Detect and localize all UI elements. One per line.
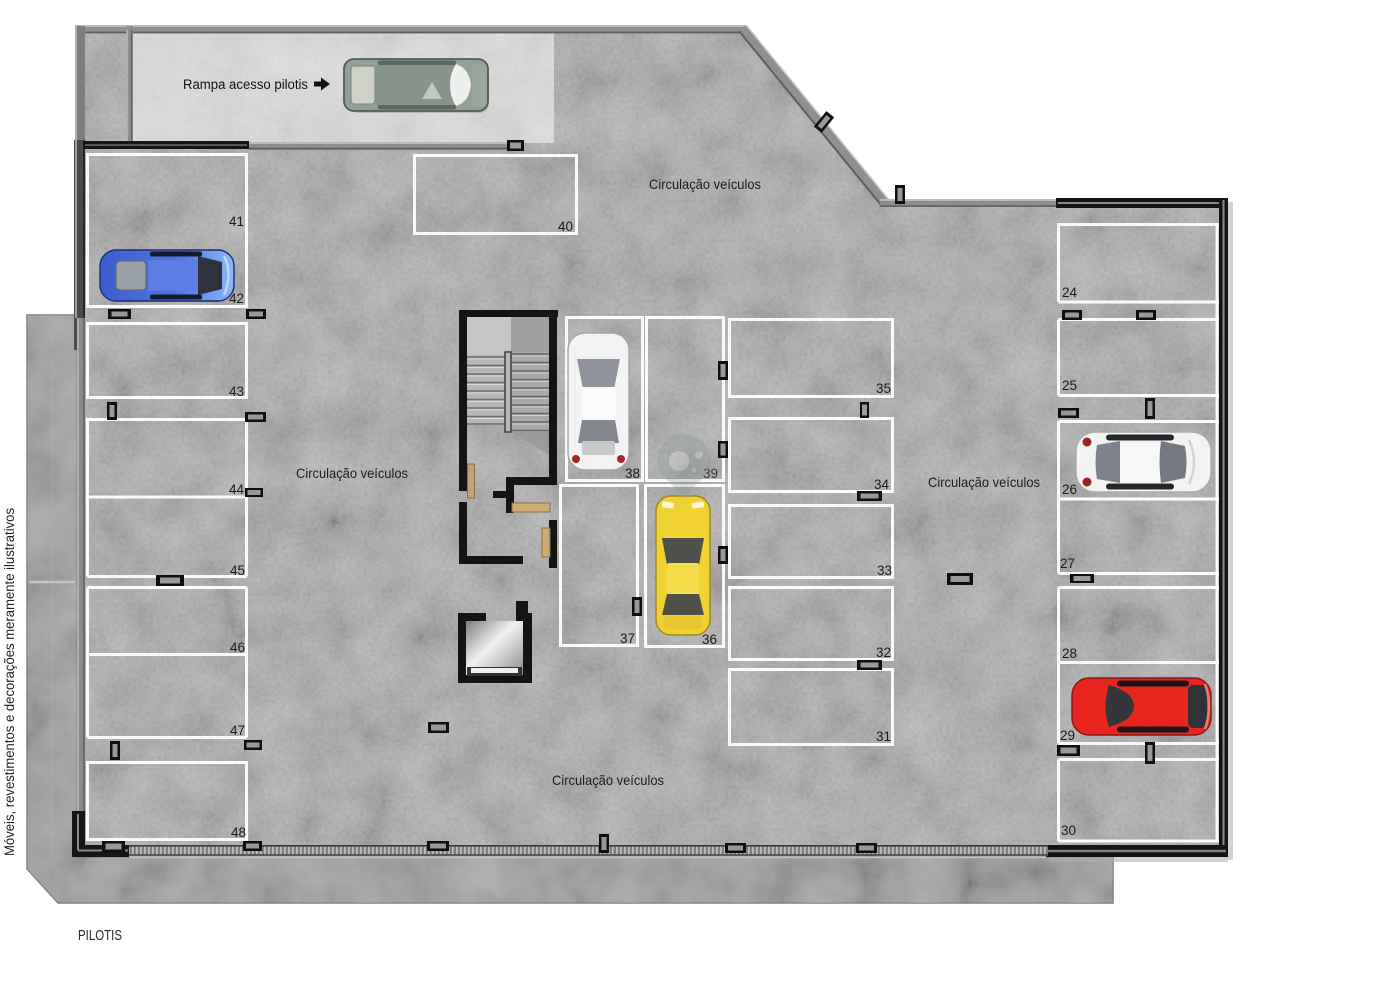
svg-text:46: 46 xyxy=(230,640,245,655)
svg-text:Circulação veículos: Circulação veículos xyxy=(928,474,1040,490)
svg-text:38: 38 xyxy=(625,466,640,481)
svg-text:Circulação veículos: Circulação veículos xyxy=(649,176,761,192)
svg-text:Circulação veículos: Circulação veículos xyxy=(552,772,664,788)
svg-text:26: 26 xyxy=(1062,482,1077,497)
svg-text:47: 47 xyxy=(230,723,245,738)
svg-text:24: 24 xyxy=(1062,285,1078,300)
svg-text:PILOTIS: PILOTIS xyxy=(78,928,122,944)
svg-text:28: 28 xyxy=(1062,646,1077,661)
svg-text:40: 40 xyxy=(558,219,573,234)
svg-text:29: 29 xyxy=(1060,728,1075,743)
svg-text:36: 36 xyxy=(702,632,717,647)
svg-text:Móveis, revestimentos e decora: Móveis, revestimentos e decorações meram… xyxy=(2,508,17,856)
svg-text:32: 32 xyxy=(876,645,891,660)
svg-text:27: 27 xyxy=(1060,556,1075,571)
svg-text:31: 31 xyxy=(876,729,891,744)
svg-text:30: 30 xyxy=(1061,823,1076,838)
svg-text:44: 44 xyxy=(229,482,245,497)
svg-text:Circulação veículos: Circulação veículos xyxy=(296,465,408,481)
svg-text:25: 25 xyxy=(1062,378,1077,393)
svg-text:48: 48 xyxy=(231,825,246,840)
svg-text:41: 41 xyxy=(229,214,244,229)
svg-text:43: 43 xyxy=(229,384,244,399)
svg-text:35: 35 xyxy=(876,381,891,396)
svg-text:37: 37 xyxy=(620,631,635,646)
svg-text:33: 33 xyxy=(877,563,892,578)
svg-text:45: 45 xyxy=(230,563,245,578)
svg-text:Rampa acesso pilotis: Rampa acesso pilotis xyxy=(183,77,308,92)
svg-text:34: 34 xyxy=(874,477,890,492)
